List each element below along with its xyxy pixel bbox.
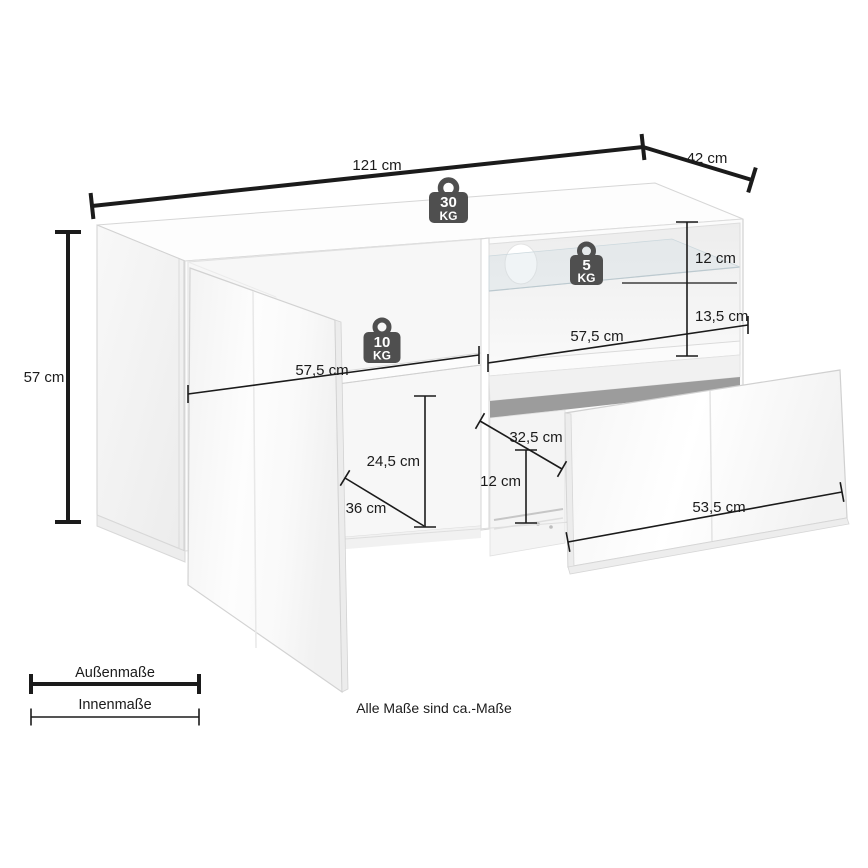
- left-shelf-load-unit: KG: [373, 349, 391, 363]
- depth-dimension-label: 42 cm: [687, 150, 728, 167]
- legend: Außenmaße Innenmaße: [31, 665, 199, 726]
- left-width-label: 57,5 cm: [295, 362, 348, 379]
- width-dimension-label: 121 cm: [352, 157, 401, 174]
- drawer-width-label: 53,5 cm: [692, 499, 745, 516]
- cabinet-drawing: [97, 183, 849, 692]
- weight-icon-top: 30 KG: [429, 180, 468, 223]
- height-dimension-label: 57 cm: [24, 369, 65, 386]
- legend-outer-label: Außenmaße: [75, 665, 155, 681]
- drawer-height-label: 12 cm: [480, 473, 521, 490]
- top-load-unit: KG: [440, 209, 458, 223]
- right-shelf-height-label: 12 cm: [695, 250, 736, 267]
- left-height-label: 24,5 cm: [367, 453, 420, 470]
- diagram-canvas: 30 KG 5 KG 10 KG 121 cm 42 cm 57 cm 12 c: [0, 0, 868, 868]
- cabinet-left-side-face: [97, 225, 185, 551]
- right-lower-height-label: 13,5 cm: [695, 308, 748, 325]
- rail-screw-hole: [549, 525, 553, 529]
- right-width-label: 57,5 cm: [570, 328, 623, 345]
- open-left-door: [188, 268, 348, 692]
- product-dimension-diagram: 30 KG 5 KG 10 KG 121 cm 42 cm 57 cm 12 c: [0, 0, 868, 868]
- legend-inner-label: Innenmaße: [78, 697, 151, 713]
- glass-shelf-load-unit: KG: [578, 271, 596, 285]
- drawer-depth-label: 32,5 cm: [509, 429, 562, 446]
- left-depth-label: 36 cm: [346, 500, 387, 517]
- measurements-footnote: Alle Maße sind ca.-Maße: [356, 700, 512, 716]
